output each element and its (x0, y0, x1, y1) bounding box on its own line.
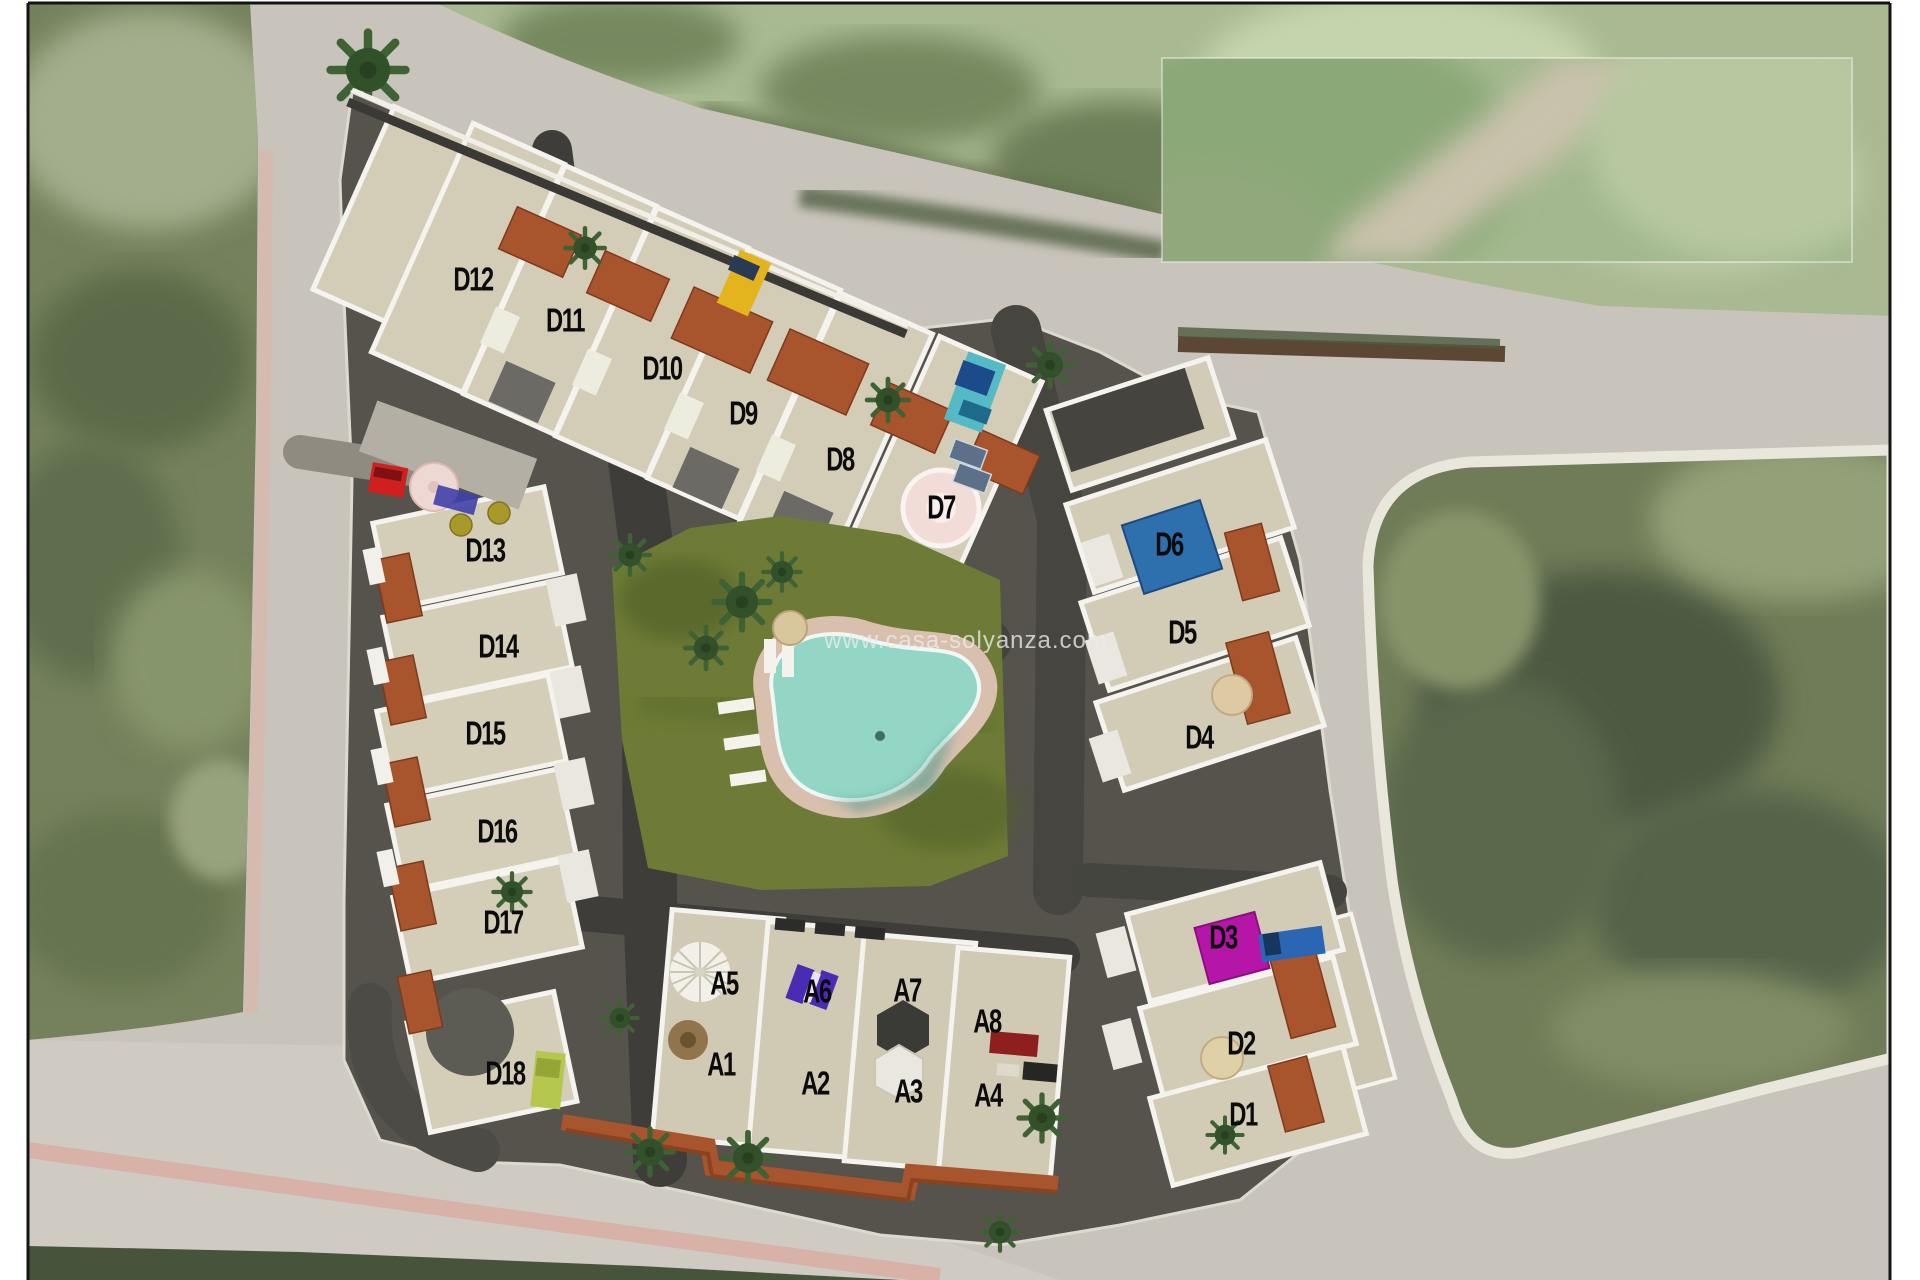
round-table (450, 514, 472, 536)
sun-umbrella-icon (1201, 1037, 1243, 1079)
site-plan-image: D12 D11 D10 D9 D8 D7 D13 D14 D15 D16 D17… (0, 0, 1920, 1280)
site-plan-rendering (0, 0, 1920, 1280)
right-field (1360, 440, 1920, 1165)
lime-car-icon (530, 1051, 566, 1110)
sun-umbrella-icon (773, 611, 807, 645)
sunburst-parasol (670, 942, 730, 1002)
swimmer (875, 731, 885, 741)
blurred-image-patch (1080, 20, 1910, 300)
round-table (488, 502, 510, 524)
red-car-icon (368, 462, 409, 498)
sun-umbrella-icon (1212, 675, 1252, 715)
round-canopy-d18 (426, 988, 514, 1076)
